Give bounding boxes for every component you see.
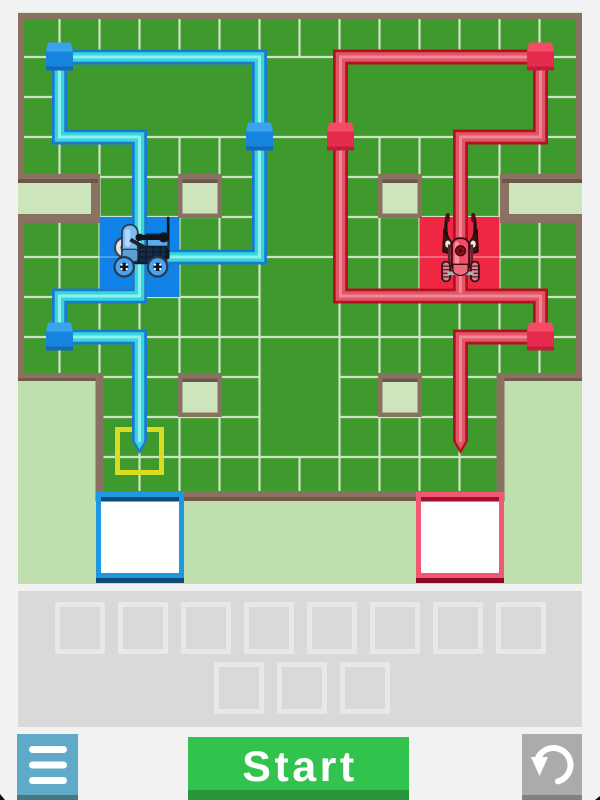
svg-text:Start: Start [242, 743, 357, 791]
